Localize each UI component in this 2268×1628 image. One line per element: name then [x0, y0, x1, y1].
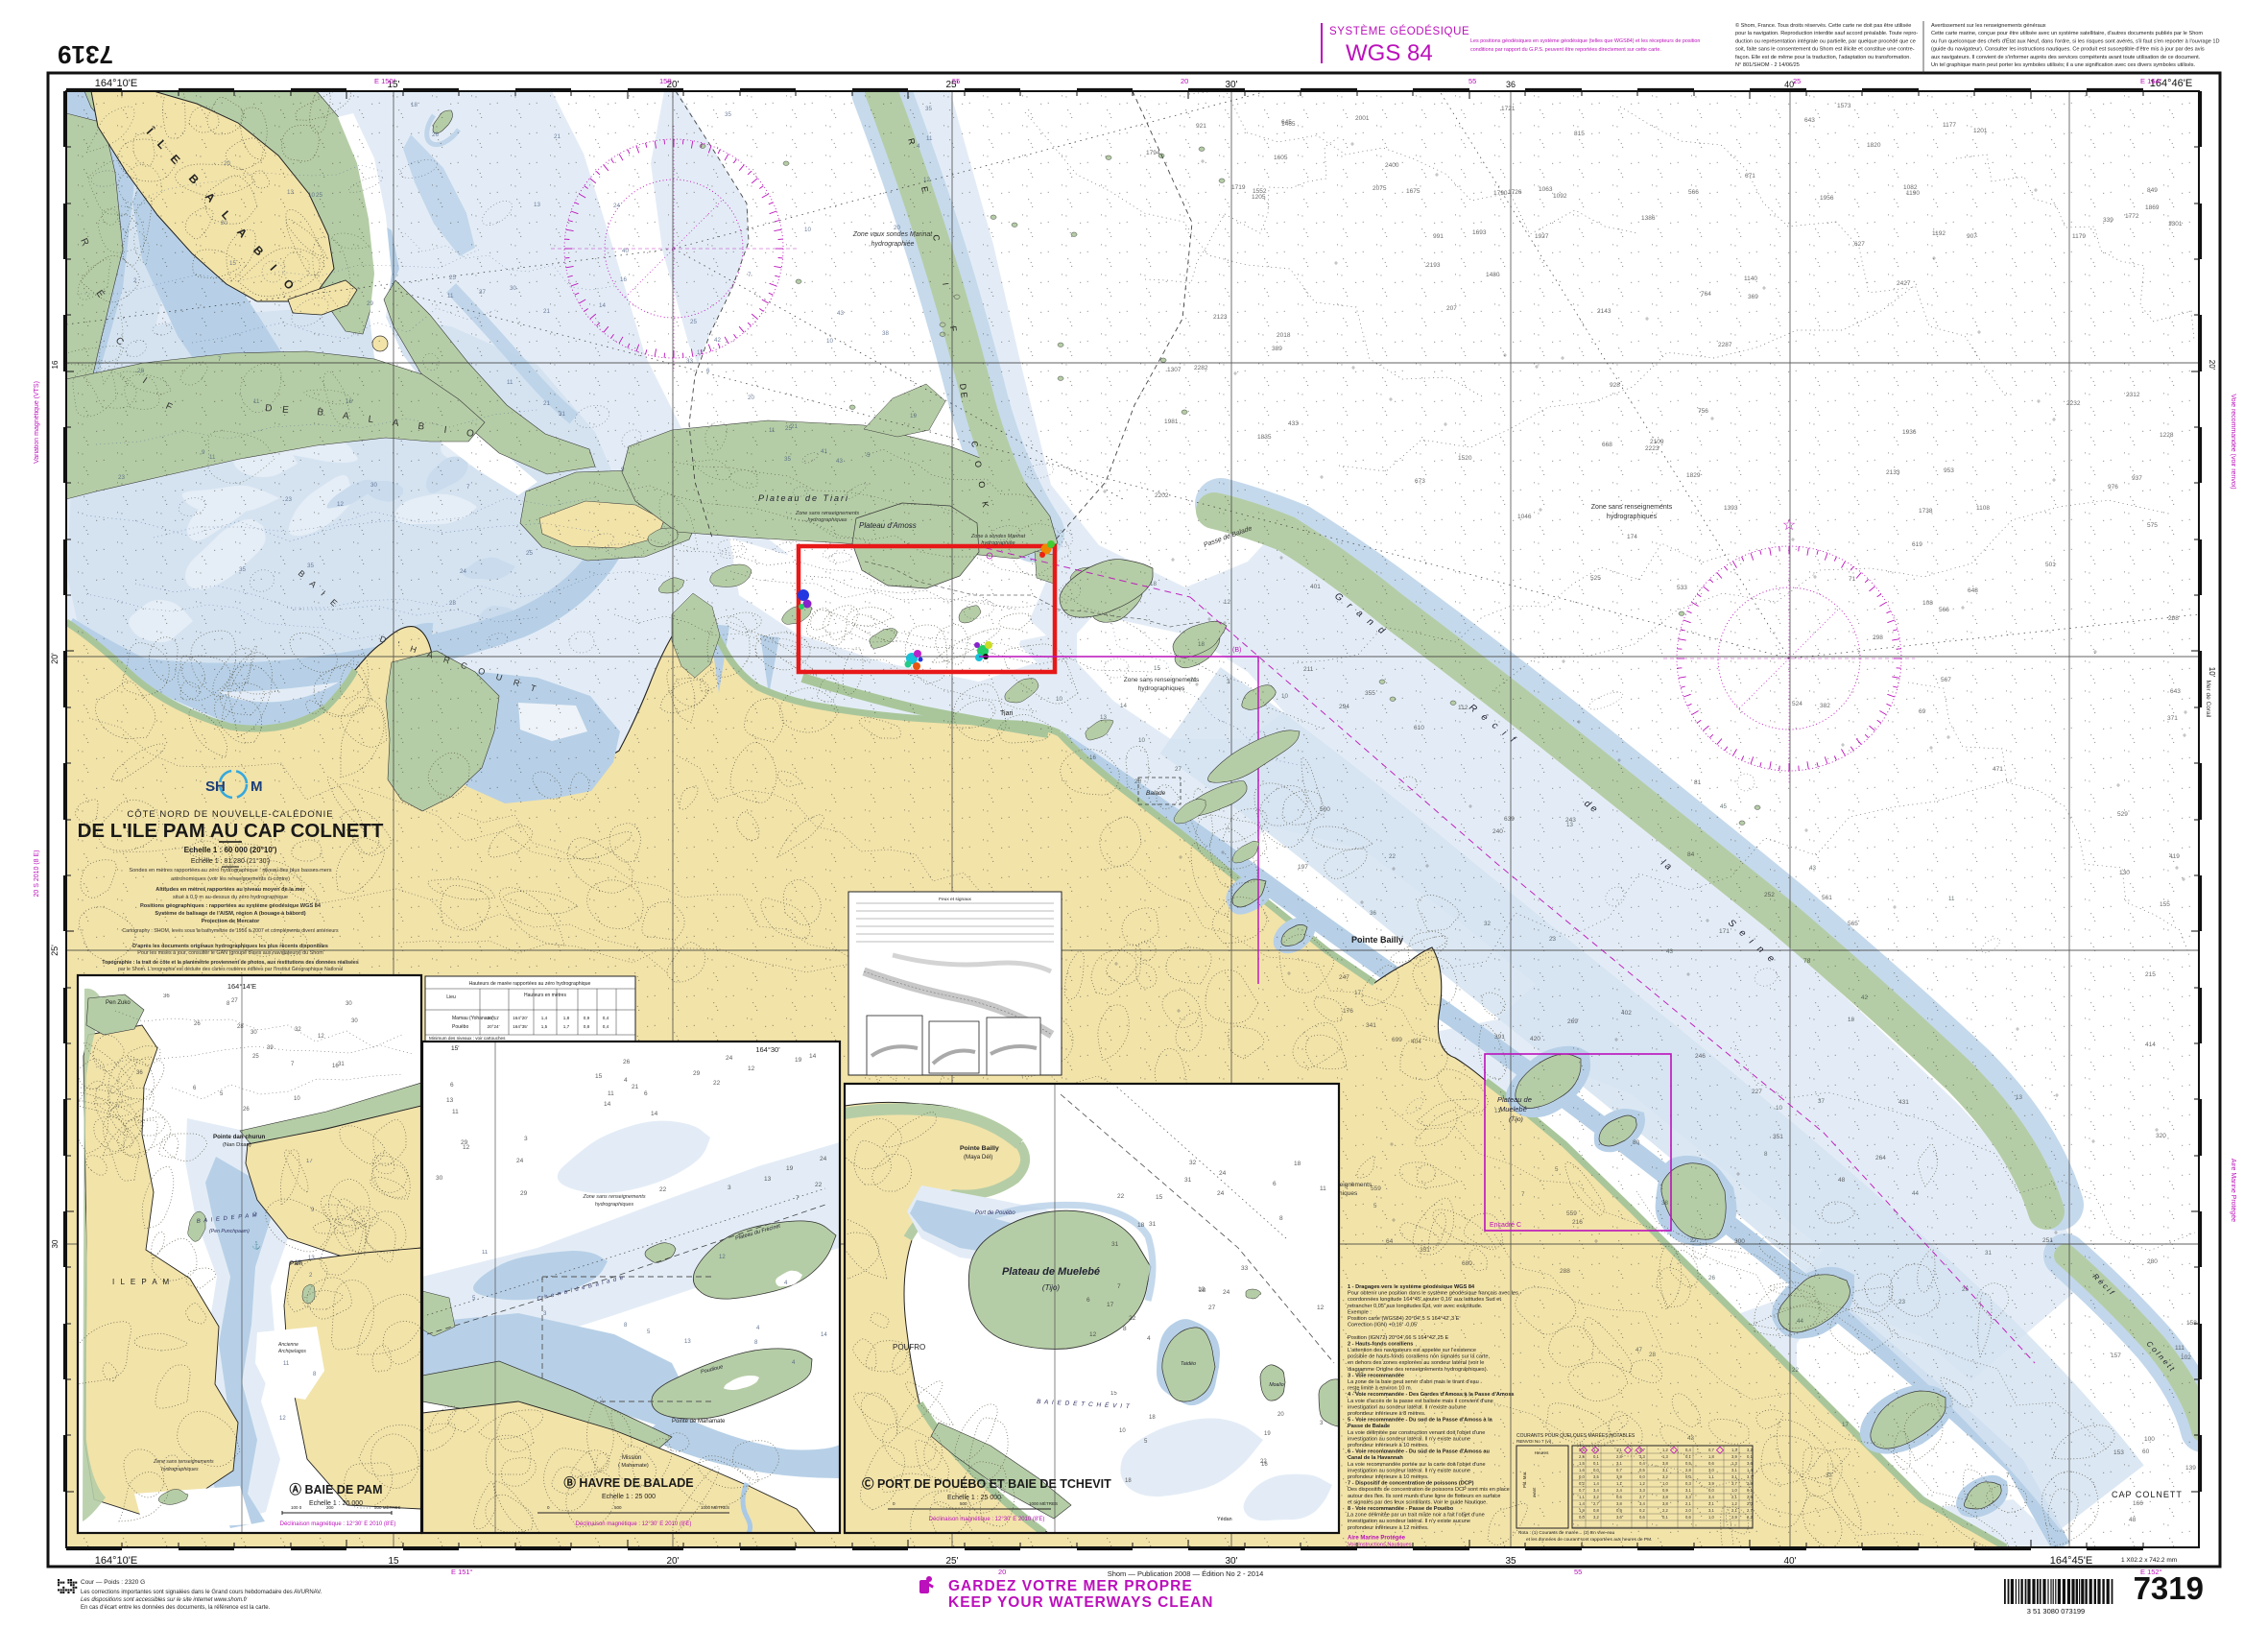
svg-text:Cette carte marine, conçue pou: Cette carte marine, conçue pour être uti… [1931, 31, 2203, 36]
svg-text:22: 22 [815, 1182, 823, 1188]
svg-text:diagramme Origine des renseign: diagramme Origine des renseignements hyd… [1348, 1367, 1489, 1373]
svg-text:4: 4 [624, 1077, 628, 1084]
svg-text:5 - Voie recommandée - Du sud: 5 - Voie recommandée - Du sud de la Pass… [1348, 1418, 1493, 1424]
svg-text:20: 20 [998, 1568, 1006, 1576]
svg-text:KEEP YOUR WATERWAYS CLEAN: KEEP YOUR WATERWAYS CLEAN [948, 1594, 1214, 1611]
svg-text:Ancienne: Ancienne [277, 1342, 298, 1348]
svg-text:1,4: 1,4 [1579, 1501, 1585, 1506]
svg-text:25': 25' [50, 945, 60, 956]
svg-text:0,4: 0,4 [1639, 1461, 1645, 1466]
svg-text:Nota : (1) Courants de marée..: Nota : (1) Courants de marée... (2) En v… [1518, 1530, 1615, 1536]
svg-text:1,4: 1,4 [541, 1016, 548, 1020]
svg-text:26: 26 [623, 1059, 631, 1065]
svg-text:19: 19 [1264, 1431, 1271, 1437]
svg-text:8 - Voie recommandée - Passe d: 8 - Voie recommandée - Passe de Pouébo [1348, 1506, 1454, 1512]
svg-text:3,4: 3,4 [1708, 1495, 1714, 1499]
svg-text:Hauteurs de marée rapportées a: Hauteurs de marée rapportées au zéro hyd… [469, 981, 591, 987]
svg-text:4 - Voie recommandée - Des Gar: 4 - Voie recommandée - Des Gardes d'Amos… [1348, 1392, 1515, 1398]
svg-text:et les données de courant sont: et les données de courant sont rapportée… [1526, 1537, 1652, 1543]
svg-text:⚓: ⚓ [251, 1240, 261, 1250]
svg-text:10: 10 [1119, 1428, 1126, 1434]
svg-text:Projection de Mercator: Projection de Mercator [202, 919, 260, 924]
svg-text:E 150°: E 150° [374, 77, 396, 85]
svg-text:3,2: 3,2 [1747, 1448, 1753, 1452]
svg-text:0,0: 0,0 [1579, 1515, 1585, 1520]
svg-text:6: 6 [450, 1082, 454, 1089]
svg-text:0,3: 0,3 [1685, 1481, 1691, 1486]
svg-text:Les corrections importantes so: Les corrections importantes sont signalé… [81, 1590, 322, 1595]
svg-text:1,1: 1,1 [1708, 1474, 1714, 1479]
svg-text:conditions par rapport du G.P.: conditions par rapport du G.P.S. peuvent… [1470, 47, 1661, 53]
svg-text:3,8: 3,8 [1616, 1501, 1622, 1506]
svg-text:(guide du navigateur). Consult: (guide du navigateur). Consulter les ins… [1931, 47, 2205, 53]
svg-text:La zone délimitée par un trait: La zone délimitée par un trait mixte noi… [1348, 1513, 1485, 1519]
svg-text:0,6: 0,6 [1639, 1515, 1645, 1520]
svg-text:hydrographiques: hydrographiques [1138, 685, 1185, 692]
svg-text:13: 13 [684, 1339, 691, 1345]
svg-text:0,4: 0,4 [603, 1016, 609, 1020]
svg-text:1,5: 1,5 [541, 1024, 548, 1029]
svg-text:hydrographiques: hydrographiques [161, 1467, 199, 1472]
svg-text:30: 30 [351, 1018, 358, 1024]
svg-text:2,5: 2,5 [1747, 1495, 1753, 1499]
svg-text:2,0: 2,0 [1747, 1501, 1753, 1506]
svg-text:3,6: 3,6 [1616, 1515, 1622, 1520]
svg-text:20': 20' [666, 1556, 679, 1567]
svg-text:Cartography : SHOM, levés sous: Cartography : SHOM, levés sous la bathym… [122, 928, 339, 934]
svg-text:1,6: 1,6 [1579, 1468, 1585, 1472]
svg-text:24: 24 [726, 1055, 733, 1062]
svg-text:astronomiques (voir les rensei: astronomiques (voir les renseignements c… [171, 876, 290, 882]
svg-text:25: 25 [1793, 77, 1801, 85]
svg-text:2,7: 2,7 [1747, 1508, 1753, 1513]
svg-text:Topographie : la trait de côte: Topographie : la trait de côte et la pla… [102, 960, 359, 966]
svg-text:55: 55 [1574, 1568, 1582, 1576]
svg-text:I L E P A M: I L E P A M [112, 1278, 171, 1286]
svg-text:2,1: 2,1 [1708, 1501, 1714, 1506]
svg-text:26: 26 [194, 1021, 201, 1027]
svg-text:18: 18 [1294, 1161, 1301, 1167]
svg-text:Plateau d'Amoss: Plateau d'Amoss [859, 521, 917, 530]
svg-text:6: 6 [1086, 1297, 1090, 1304]
svg-text:autour des îles. Ils sont muni: autour des îles. Ils sont munis d'une li… [1348, 1494, 1500, 1499]
svg-text:32: 32 [1189, 1160, 1197, 1166]
svg-text:Shom — Publication 2008 — Édit: Shom — Publication 2008 — Édition No 2 -… [1108, 1569, 1264, 1578]
svg-text:15': 15' [451, 1045, 459, 1052]
svg-text:Plateau de: Plateau de [1497, 1095, 1532, 1104]
svg-text:22: 22 [1117, 1193, 1125, 1200]
svg-text:Ⓑ HAVRE DE BALADE: Ⓑ HAVRE DE BALADE [563, 1475, 693, 1490]
svg-text:et signalés par des feux scint: et signalés par des feux scintillants. V… [1348, 1499, 1488, 1505]
svg-text:12: 12 [279, 1416, 286, 1422]
svg-text:22: 22 [713, 1080, 721, 1087]
svg-text:Déclinaison magnétique : 12°30: Déclinaison magnétique : 12°30' E 2010 (… [929, 1517, 1045, 1522]
svg-text:Aire Marine Protégée: Aire Marine Protégée [2230, 1159, 2236, 1222]
svg-text:500: 500 [614, 1505, 622, 1510]
svg-text:Exemple :: Exemple : [1348, 1309, 1372, 1315]
svg-text:1000 MÈTRES: 1000 MÈTRES [701, 1504, 729, 1510]
svg-text:Canal de la Havannah: Canal de la Havannah [1348, 1455, 1403, 1461]
svg-text:Port de Pouébo: Port de Pouébo [975, 1210, 1015, 1216]
svg-text:Avertissement sur les renseign: Avertissement sur les renseignements gén… [1931, 23, 2046, 29]
svg-text:1,2: 1,2 [1639, 1481, 1645, 1486]
svg-text:Passe de Balade: Passe de Balade [1348, 1424, 1390, 1429]
svg-text:pour la navigation. Reproducti: pour la navigation. Reproduction interdi… [1735, 31, 1918, 36]
svg-text:0,9: 0,9 [1662, 1488, 1668, 1493]
svg-text:WGS 84: WGS 84 [1346, 40, 1433, 66]
svg-text:30: 30 [436, 1175, 443, 1182]
svg-text:Aire Marine Protégée: Aire Marine Protégée [1348, 1535, 1406, 1541]
svg-text:3,1: 3,1 [1731, 1468, 1737, 1472]
svg-text:14: 14 [809, 1053, 817, 1060]
svg-text:M: M [251, 778, 263, 795]
svg-text:en dehors des zones explorées: en dehors des zones explorées au sondeur… [1348, 1360, 1484, 1366]
svg-text:Des dispositifs de concentrati: Des dispositifs de concentration de pois… [1348, 1487, 1510, 1493]
svg-text:2,9: 2,9 [1731, 1515, 1737, 1520]
svg-text:POUFRO: POUFRO [893, 1343, 925, 1352]
svg-text:7 - Dispositif de concentratio: 7 - Dispositif de concentration de poiss… [1348, 1481, 1474, 1487]
svg-text:28: 28 [1199, 1287, 1206, 1294]
svg-text:30': 30' [1225, 80, 1237, 90]
svg-text:164°45'E: 164°45'E [2050, 1555, 2092, 1567]
svg-text:par le Shom. L'orographie est: par le Shom. L'orographie est déduite de… [118, 967, 343, 972]
svg-text:30: 30 [51, 1239, 60, 1248]
svg-text:2,1: 2,1 [1731, 1508, 1737, 1513]
svg-text:18: 18 [1137, 1222, 1145, 1229]
svg-text:12: 12 [1089, 1331, 1097, 1338]
svg-text:D E: D E [958, 383, 969, 398]
svg-text:hydrographiques: hydrographiques [595, 1202, 633, 1208]
svg-text:24: 24 [1217, 1190, 1225, 1197]
svg-text:avant: avant [1532, 1487, 1537, 1497]
svg-text:3,1: 3,1 [1708, 1508, 1714, 1513]
svg-text:24: 24 [820, 1156, 827, 1162]
svg-text:1,2: 1,2 [1662, 1448, 1668, 1452]
svg-text:Lieu: Lieu [446, 994, 456, 1000]
svg-text:3,3: 3,3 [1639, 1488, 1645, 1493]
svg-text:3 - Voie recommandée: 3 - Voie recommandée [1348, 1373, 1404, 1378]
svg-text:3,4: 3,4 [1639, 1501, 1645, 1506]
svg-text:3,4: 3,4 [1593, 1488, 1599, 1493]
svg-text:E 151°: E 151° [451, 1568, 473, 1576]
svg-text:0,0: 0,0 [1593, 1468, 1599, 1472]
svg-text:500 MÈTRES: 500 MÈTRES [374, 1504, 401, 1510]
svg-text:21: 21 [632, 1084, 639, 1090]
svg-text:19: 19 [795, 1057, 802, 1064]
svg-text:Zone sans renseignements: Zone sans renseignements [153, 1459, 214, 1465]
svg-text:0,7: 0,7 [1579, 1488, 1585, 1493]
svg-text:Heures: Heures [1535, 1450, 1550, 1455]
svg-text:29: 29 [520, 1190, 528, 1197]
svg-text:1,3: 1,3 [1731, 1448, 1737, 1452]
svg-text:1,8: 1,8 [563, 1016, 570, 1020]
svg-text:façon. Elle est de même pour l: façon. Elle est de même pour la traducti… [1735, 55, 1911, 60]
svg-text:1,2: 1,2 [1731, 1501, 1737, 1506]
svg-text:36: 36 [163, 994, 170, 999]
svg-text:3,1: 3,1 [1685, 1488, 1691, 1493]
svg-text:24: 24 [1219, 1170, 1227, 1177]
svg-text:Echelle 1 : 81 280 (21°30'): Echelle 1 : 81 280 (21°30') [191, 857, 270, 865]
svg-text:Un tel graphique marin peut po: Un tel graphique marin peut porter les s… [1931, 62, 2196, 68]
svg-text:Ⓒ PORT DE POUÉBO ET BAIE DE TC: Ⓒ PORT DE POUÉBO ET BAIE DE TCHEVIT [862, 1476, 1111, 1491]
svg-text:1,1: 1,1 [1579, 1495, 1585, 1499]
svg-text:0,1: 0,1 [1685, 1454, 1691, 1459]
svg-text:25: 25 [252, 1054, 259, 1060]
svg-text:Zone à sondes Marinat: Zone à sondes Marinat [970, 534, 1026, 539]
svg-text:ou l'un quelconque des chefs d: ou l'un quelconque des chefs d'État aux … [1931, 37, 2220, 44]
svg-text:reste limité à environ 10 m.: reste limité à environ 10 m. [1348, 1386, 1413, 1392]
svg-text:3,1: 3,1 [1616, 1461, 1622, 1466]
svg-text:profondeur inférieure à 10 mèt: profondeur inférieure à 10 mètres. [1348, 1443, 1429, 1448]
svg-text:6 - Voie recommandée - Du sud: 6 - Voie recommandée - Du sud de la Pass… [1348, 1449, 1491, 1455]
svg-text:0,5: 0,5 [1685, 1461, 1691, 1466]
svg-text:1 - Dragages vers le système g: 1 - Dragages vers le système géodésique … [1348, 1284, 1475, 1290]
svg-text:(Tijo): (Tijo) [1042, 1283, 1060, 1292]
svg-text:3,6: 3,6 [1747, 1461, 1753, 1466]
svg-text:7319: 7319 [58, 40, 113, 69]
svg-text:Taidéo: Taidéo [1181, 1361, 1196, 1367]
svg-text:7: 7 [1117, 1283, 1121, 1290]
svg-text:11: 11 [482, 1250, 489, 1256]
svg-text:investigation au sondeur latér: investigation au sondeur latéral. Il n'y… [1348, 1519, 1470, 1524]
svg-text:Voie recommandée (voir renvoi): Voie recommandée (voir renvoi) [2230, 394, 2236, 489]
svg-text:1 X02.2 x 742.2 mm: 1 X02.2 x 742.2 mm [2121, 1557, 2177, 1564]
svg-text:Archipelagos: Archipelagos [277, 1349, 306, 1354]
svg-text:19: 19 [786, 1165, 794, 1172]
svg-text:14: 14 [604, 1101, 611, 1108]
svg-text:aux navigateurs. Il convient d: aux navigateurs. Il convient de s'inform… [1931, 55, 2201, 60]
svg-text:0,0: 0,0 [1685, 1474, 1691, 1479]
svg-text:30: 30 [346, 1001, 352, 1007]
svg-text:36: 36 [1506, 80, 1516, 89]
svg-text:Mission: Mission [622, 1455, 641, 1461]
svg-text:3,8: 3,8 [1662, 1461, 1668, 1466]
svg-text:Système de balisage de l'AISM,: Système de balisage de l'AISM, région A … [155, 911, 305, 917]
svg-text:20': 20' [50, 653, 60, 664]
svg-text:situé à 0,9 m au-dessus du zér: situé à 0,9 m au-dessus du zéro hydrogra… [173, 895, 288, 900]
svg-text:2,1: 2,1 [1731, 1495, 1737, 1499]
svg-text:3,1: 3,1 [1662, 1468, 1668, 1472]
svg-text:10': 10' [2208, 667, 2216, 678]
svg-text:Yédan: Yédan [1217, 1517, 1232, 1522]
svg-text:investigation au sondeur latér: investigation au sondeur latéral. Il n'y… [1348, 1468, 1470, 1473]
svg-text:3,2: 3,2 [1593, 1515, 1599, 1520]
svg-text:15: 15 [1110, 1391, 1117, 1397]
svg-text:20°24': 20°24' [488, 1024, 500, 1029]
svg-text:En cas d'écart entre les donné: En cas d'écart entre les données des doc… [81, 1605, 271, 1611]
svg-text:La voie d'accès de la passe es: La voie d'accès de la passe est balisée … [1348, 1399, 1493, 1404]
svg-text:Plateau de Muelebé: Plateau de Muelebé [1002, 1266, 1100, 1278]
svg-text:8: 8 [1123, 1326, 1127, 1332]
svg-text:22: 22 [659, 1186, 667, 1193]
svg-text:22: 22 [1260, 1459, 1267, 1465]
svg-text:164°14'E: 164°14'E [227, 982, 256, 991]
svg-text:hydrographiée: hydrographiée [871, 241, 915, 248]
svg-text:2,7: 2,7 [1593, 1501, 1599, 1506]
svg-text:1,0: 1,0 [1662, 1481, 1668, 1486]
svg-text:Muelebé: Muelebé [1499, 1105, 1527, 1113]
svg-text:0,5: 0,5 [1639, 1468, 1645, 1472]
svg-text:Pointe dan churun: Pointe dan churun [213, 1134, 266, 1140]
svg-text:164°30': 164°30' [755, 1045, 780, 1054]
svg-text:profondeur inférieure à 8 mètr: profondeur inférieure à 8 mètres. [1348, 1411, 1426, 1417]
svg-text:3,3: 3,3 [1685, 1495, 1691, 1499]
svg-text:24: 24 [1223, 1289, 1230, 1296]
svg-text:0,0: 0,0 [1639, 1474, 1645, 1479]
svg-text:2,9: 2,9 [1747, 1481, 1753, 1486]
svg-text:Altitudes en mètres rapportées: Altitudes en mètres rapportées au niveau… [155, 887, 305, 893]
svg-text:55: 55 [952, 77, 960, 85]
svg-text:Encadré C: Encadré C [1490, 1222, 1521, 1229]
svg-text:35: 35 [1505, 1556, 1516, 1567]
svg-text:Plateau de Tiari: Plateau de Tiari [758, 493, 849, 503]
svg-text:10: 10 [294, 1096, 300, 1102]
svg-text:3,7: 3,7 [1747, 1474, 1753, 1479]
svg-text:17: 17 [1107, 1302, 1114, 1308]
svg-text:0,0: 0,0 [1708, 1488, 1714, 1493]
svg-text:31: 31 [1149, 1221, 1157, 1228]
svg-text:Déclinaison magnétique : 12°30: Déclinaison magnétique : 12°30' E 2010 (… [576, 1521, 692, 1527]
svg-text:13: 13 [308, 1256, 315, 1261]
svg-text:18: 18 [1125, 1478, 1132, 1484]
svg-text:1,4: 1,4 [1593, 1481, 1599, 1486]
svg-text:0,1: 0,1 [1593, 1461, 1599, 1466]
svg-text:13: 13 [764, 1176, 772, 1183]
svg-text:N° 801/SHOM - 2 14/06/25: N° 801/SHOM - 2 14/06/25 [1735, 62, 1800, 68]
svg-text:Feux et signaux: Feux et signaux [939, 897, 971, 902]
svg-text:0,2: 0,2 [1639, 1508, 1645, 1513]
svg-text:18: 18 [1149, 1415, 1156, 1421]
svg-text:SYSTÈME GÉODÉSIQUE: SYSTÈME GÉODÉSIQUE [1329, 25, 1469, 37]
svg-text:Correction (IGN): Correction (IGN) +0,16' -0,05' [1348, 1323, 1418, 1329]
svg-text:1,3: 1,3 [1731, 1461, 1737, 1466]
svg-text:CÔTE NORD DE NOUVELLE-CALÉD: CÔTE NORD DE NOUVELLE-CALÉDONIE [127, 809, 333, 820]
svg-text:1000 MÈTRES: 1000 MÈTRES [1029, 1500, 1058, 1506]
svg-text:3,9: 3,9 [1731, 1454, 1737, 1459]
svg-text:12: 12 [748, 1065, 755, 1072]
svg-text:150: 150 [659, 77, 672, 85]
svg-text:E 164°: E 164° [2140, 77, 2162, 85]
svg-text:13: 13 [446, 1097, 454, 1104]
svg-text:Cour — Poids : 2320 G: Cour — Poids : 2320 G [81, 1579, 145, 1586]
svg-text:11: 11 [1320, 1185, 1326, 1192]
svg-text:☆: ☆ [1782, 517, 1796, 534]
svg-text:7319: 7319 [2134, 1570, 2204, 1606]
svg-text:30': 30' [1225, 1556, 1237, 1567]
svg-text:Zone sans renseignements: Zone sans renseignements [1124, 677, 1200, 683]
svg-text:Echelle 1 : 60 000 (20°10'): Echelle 1 : 60 000 (20°10') [184, 846, 277, 854]
svg-text:6: 6 [644, 1090, 648, 1097]
svg-text:3 51 3080 073199: 3 51 3080 073199 [2027, 1607, 2085, 1616]
svg-text:20': 20' [2208, 360, 2216, 371]
svg-text:39: 39 [267, 1045, 274, 1051]
svg-text:(Pen Punchpaam): (Pen Punchpaam) [209, 1229, 250, 1234]
svg-text:coordonnées longitude 164°45': coordonnées longitude 164°45' ajouter 0,… [1348, 1297, 1501, 1303]
svg-text:1,4: 1,4 [1747, 1468, 1753, 1472]
svg-text:1,1: 1,1 [1616, 1481, 1622, 1486]
svg-text:investigation au sondeur latér: investigation au sondeur latéral. Il n'y… [1348, 1436, 1470, 1442]
svg-text:11: 11 [283, 1361, 290, 1367]
svg-text:D'après les documents originau: D'après les documents originaux hydrogra… [132, 944, 328, 949]
svg-text:20: 20 [1181, 77, 1188, 85]
svg-text:L'attention des navigateurs es: L'attention des navigateurs est appelée … [1348, 1348, 1476, 1353]
svg-text:La zone de la baie peut servir: La zone de la baie peut servir d'abri ma… [1348, 1379, 1479, 1385]
svg-text:© Shom, France. Tous droits ré: © Shom, France. Tous droits réservés. Ce… [1735, 22, 1911, 29]
svg-text:28: 28 [237, 1024, 244, 1030]
svg-text:14: 14 [651, 1111, 658, 1117]
svg-text:possible de hauts-fonds corall: possible de hauts-fonds coralliens non s… [1348, 1354, 1490, 1360]
svg-text:2,8: 2,8 [1685, 1468, 1691, 1472]
svg-text:0,4: 0,4 [1685, 1448, 1691, 1452]
svg-text:Pour les mises à jour, consult: Pour les mises à jour, consulter le GAN … [137, 950, 323, 956]
svg-text:hydrographiques: hydrographiques [1607, 514, 1658, 520]
svg-text:2,5: 2,5 [1579, 1454, 1585, 1459]
svg-text:2,4: 2,4 [1616, 1488, 1622, 1493]
svg-text:2,7: 2,7 [1639, 1495, 1645, 1499]
svg-text:27: 27 [1208, 1305, 1216, 1311]
svg-text:1,0: 1,0 [1708, 1515, 1714, 1520]
svg-text:0,1: 0,1 [1747, 1488, 1753, 1493]
svg-text:Positions géographiques : rapp: Positions géographiques : rapportées au … [140, 903, 322, 909]
svg-text:12: 12 [318, 1034, 324, 1040]
svg-text:0,8: 0,8 [1593, 1508, 1599, 1513]
svg-text:0,7: 0,7 [1616, 1468, 1622, 1472]
svg-text:15: 15 [388, 1556, 399, 1567]
svg-text:CAP COLNETT: CAP COLNETT [2112, 1490, 2183, 1499]
svg-text:RENVOI No 7 (vi): RENVOI No 7 (vi) [1516, 1439, 1552, 1444]
svg-text:Echelle 1 : 25 000: Echelle 1 : 25 000 [947, 1495, 1001, 1501]
svg-text:Pouébo: Pouébo [452, 1024, 468, 1030]
svg-text:0,1: 0,1 [1662, 1515, 1668, 1520]
svg-text:30: 30 [251, 1030, 257, 1036]
svg-text:0,1: 0,1 [1747, 1454, 1753, 1459]
svg-text:Position carte (WGS84) 20: Position carte (WGS84) 20°04',5 S 164°42… [1348, 1316, 1460, 1322]
svg-text:2 - Hauts-fonds coralliens: 2 - Hauts-fonds coralliens [1348, 1341, 1413, 1347]
svg-text:hydrographiques: hydrographiques [808, 517, 848, 523]
svg-text:La voie recommandée portée sur: La voie recommandée portée sur la carte … [1348, 1462, 1486, 1468]
svg-text:Zone sans renseignements: Zone sans renseignements [582, 1194, 645, 1200]
svg-text:8: 8 [1279, 1215, 1283, 1222]
svg-text:Sondes en mètres rapportées au: Sondes en mètres rapportées au zéro hydr… [129, 868, 331, 874]
svg-text:hydrographiée: hydrographiée [981, 540, 1015, 546]
svg-text:29: 29 [693, 1070, 701, 1077]
svg-text:Zone vaux sondes Marinat: Zone vaux sondes Marinat [852, 231, 934, 238]
svg-text:Position (IGN72): Position (IGN72) 20°04',66 S 164°42',25 … [1348, 1335, 1448, 1341]
svg-text:15: 15 [1156, 1194, 1163, 1201]
svg-text:Les positions géodésiques en s: Les positions géodésiques en système géo… [1470, 38, 1700, 44]
svg-text:Pointe Bailly: Pointe Bailly [960, 1145, 999, 1152]
svg-text:0,9: 0,9 [1616, 1508, 1622, 1513]
svg-text:1,5: 1,5 [1579, 1461, 1585, 1466]
svg-text:164°10'E: 164°10'E [95, 78, 137, 89]
svg-text:40': 40' [1783, 1556, 1796, 1567]
svg-text:SH: SH [205, 778, 226, 795]
svg-text:Echelle 1 : 20 000: Echelle 1 : 20 000 [309, 1500, 363, 1507]
svg-text:Pour obtenir une position dans: Pour obtenir une position dans le systèm… [1348, 1291, 1518, 1297]
svg-text:( Mahamate): ( Mahamate) [618, 1463, 649, 1469]
svg-text:55: 55 [1468, 77, 1476, 85]
svg-text:Pld. Mar.: Pld. Mar. [1522, 1472, 1527, 1488]
svg-text:2,1: 2,1 [1685, 1501, 1691, 1506]
svg-text:16: 16 [51, 360, 60, 369]
svg-text:Echelle 1 : 25 000: Echelle 1 : 25 000 [602, 1494, 656, 1500]
svg-text:(Tijo): (Tijo) [1509, 1116, 1523, 1123]
svg-text:3,3: 3,3 [1639, 1454, 1645, 1459]
svg-text:Pointe de Mahamate: Pointe de Mahamate [672, 1419, 726, 1424]
svg-text:12: 12 [1317, 1305, 1325, 1311]
svg-text:Variation magnétique (VTS): Variation magnétique (VTS) [34, 381, 40, 464]
svg-text:0,9: 0,9 [584, 1016, 590, 1020]
